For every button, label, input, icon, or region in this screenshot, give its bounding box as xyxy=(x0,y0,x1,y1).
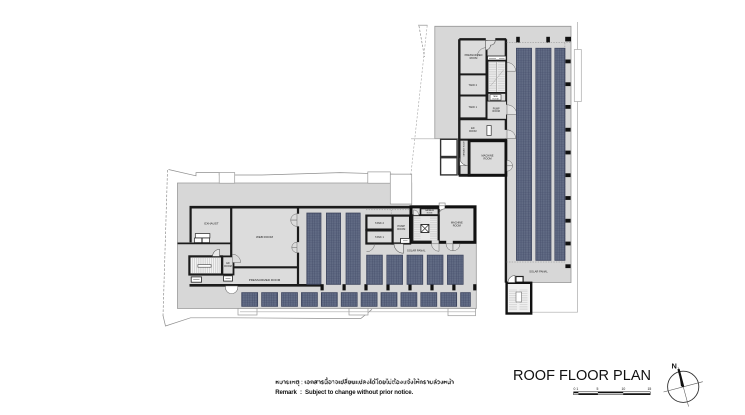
svg-text:TANK 2: TANK 2 xyxy=(469,84,478,87)
svg-text:10: 10 xyxy=(622,387,626,391)
svg-text:WEB ROOM: WEB ROOM xyxy=(256,235,274,239)
svg-text:0 1: 0 1 xyxy=(574,387,579,391)
svg-text:5: 5 xyxy=(597,387,599,391)
svg-text:15: 15 xyxy=(648,387,652,391)
svg-text:TANK 1: TANK 1 xyxy=(375,235,384,239)
svg-text:PRESSURIZED ROOM: PRESSURIZED ROOM xyxy=(249,278,281,282)
svg-text:ROOM: ROOM xyxy=(493,99,499,101)
svg-text:N: N xyxy=(672,362,677,371)
svg-text:TANK 2: TANK 2 xyxy=(375,221,384,225)
svg-text:SOLAR PANAL: SOLAR PANAL xyxy=(407,248,426,252)
svg-text:Remark : Subject to change w: Remark : Subject to change without prior… xyxy=(275,389,413,396)
svg-text:TANK 1: TANK 1 xyxy=(469,106,478,109)
svg-text:PUMPROOM: PUMPROOM xyxy=(492,107,500,113)
svg-text:ROOF FLOOR PLAN: ROOF FLOOR PLAN xyxy=(513,368,651,384)
svg-text:EXHAUST: EXHAUST xyxy=(204,222,218,226)
svg-text:PUMPROOM: PUMPROOM xyxy=(397,224,405,231)
svg-text:GARBAGE ROOM: GARBAGE ROOM xyxy=(462,141,465,156)
svg-text:SOLAR PANAL: SOLAR PANAL xyxy=(529,269,548,273)
